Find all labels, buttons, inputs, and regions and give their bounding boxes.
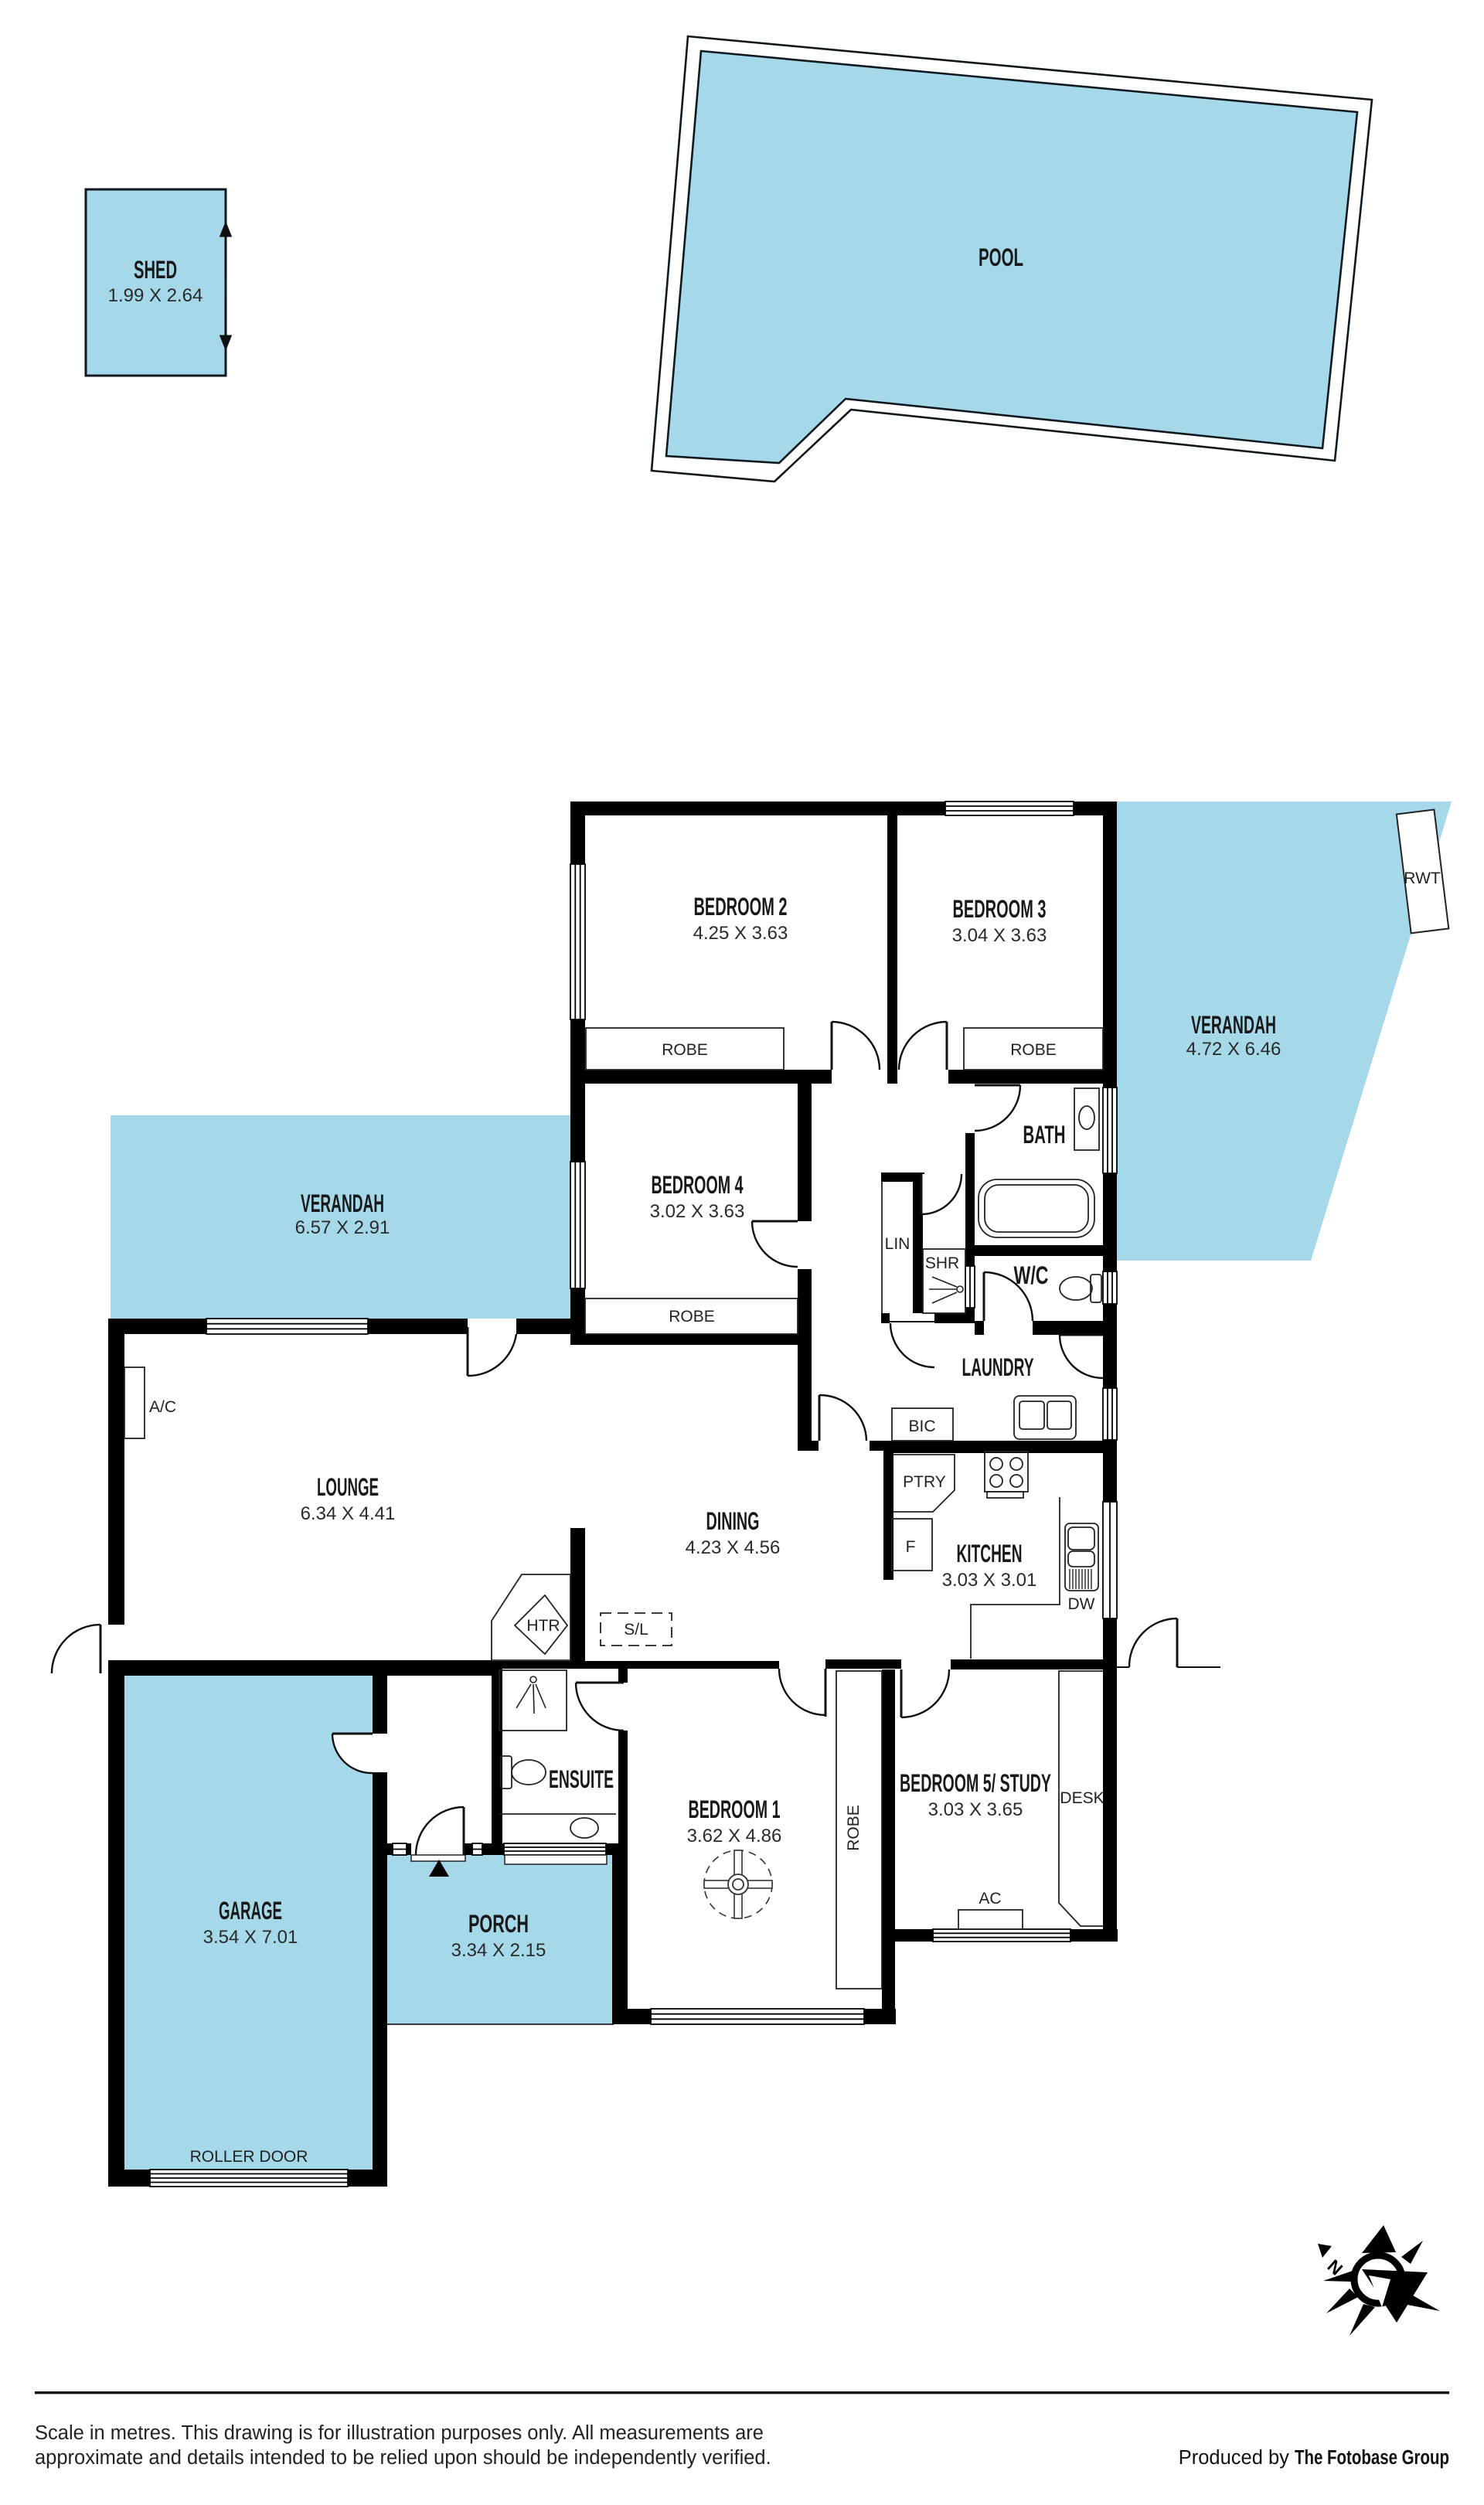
svg-text:3.34 X 2.15: 3.34 X 2.15 bbox=[451, 1940, 546, 1961]
svg-text:4.25 X 3.63: 4.25 X 3.63 bbox=[693, 923, 788, 944]
svg-text:VERANDAH: VERANDAH bbox=[301, 1190, 384, 1217]
svg-text:BEDROOM 4: BEDROOM 4 bbox=[652, 1171, 744, 1199]
svg-text:A/C: A/C bbox=[149, 1398, 176, 1416]
svg-text:SHED: SHED bbox=[134, 256, 177, 284]
svg-text:4.23 X 4.56: 4.23 X 4.56 bbox=[686, 1537, 781, 1558]
svg-text:BIC: BIC bbox=[908, 1418, 935, 1435]
svg-text:3.04 X 3.63: 3.04 X 3.63 bbox=[952, 925, 1047, 946]
svg-text:ROBE: ROBE bbox=[662, 1041, 708, 1059]
svg-text:ROBE: ROBE bbox=[845, 1805, 863, 1851]
svg-text:ROBE: ROBE bbox=[669, 1308, 715, 1326]
svg-text:3.03 X 3.01: 3.03 X 3.01 bbox=[942, 1570, 1037, 1591]
svg-text:GARAGE: GARAGE bbox=[219, 1897, 282, 1925]
svg-text:RWT: RWT bbox=[1404, 870, 1441, 887]
svg-text:BATH: BATH bbox=[1023, 1121, 1066, 1149]
svg-text:ROBE: ROBE bbox=[1010, 1041, 1057, 1059]
svg-text:DESK: DESK bbox=[1060, 1789, 1104, 1807]
svg-text:VERANDAH: VERANDAH bbox=[1191, 1011, 1276, 1039]
svg-text:BEDROOM 2: BEDROOM 2 bbox=[694, 893, 788, 921]
svg-text:LOUNGE: LOUNGE bbox=[317, 1473, 379, 1501]
svg-text:BEDROOM 1: BEDROOM 1 bbox=[689, 1795, 781, 1823]
svg-text:DINING: DINING bbox=[706, 1507, 760, 1535]
svg-text:AC: AC bbox=[979, 1890, 1001, 1908]
svg-text:3.02 X 3.63: 3.02 X 3.63 bbox=[650, 1201, 745, 1222]
svg-text:PORCH: PORCH bbox=[468, 1910, 529, 1938]
svg-text:LIN: LIN bbox=[885, 1235, 910, 1253]
svg-text:approximate and details intend: approximate and details intended to be r… bbox=[35, 2447, 771, 2469]
svg-text:ROLLER DOOR: ROLLER DOOR bbox=[190, 2148, 308, 2166]
svg-text:W/C: W/C bbox=[1014, 1261, 1049, 1289]
svg-text:3.54 X 7.01: 3.54 X 7.01 bbox=[203, 1927, 298, 1948]
svg-text:S/L: S/L bbox=[624, 1621, 648, 1639]
svg-text:HTR: HTR bbox=[526, 1617, 560, 1635]
svg-text:6.34 X 4.41: 6.34 X 4.41 bbox=[301, 1503, 396, 1524]
svg-text:F: F bbox=[906, 1538, 916, 1556]
svg-text:1.99 X 2.64: 1.99 X 2.64 bbox=[108, 285, 203, 306]
svg-text:6.57 X 2.91: 6.57 X 2.91 bbox=[295, 1217, 390, 1238]
svg-text:Produced by The Fotobase Group: Produced by The Fotobase Group bbox=[1179, 2447, 1449, 2469]
svg-text:SHR: SHR bbox=[925, 1254, 959, 1272]
svg-text:POOL: POOL bbox=[979, 243, 1023, 271]
svg-text:3.03 X 3.65: 3.03 X 3.65 bbox=[928, 1799, 1023, 1820]
svg-text:Scale in metres. This drawing: Scale in metres. This drawing is for ill… bbox=[35, 2422, 764, 2444]
svg-text:4.72 X 6.46: 4.72 X 6.46 bbox=[1186, 1039, 1281, 1060]
svg-text:ENSUITE: ENSUITE bbox=[549, 1765, 614, 1793]
svg-text:LAUNDRY: LAUNDRY bbox=[962, 1353, 1034, 1381]
svg-text:3.62 X 4.86: 3.62 X 4.86 bbox=[687, 1826, 782, 1846]
svg-text:BEDROOM 3: BEDROOM 3 bbox=[953, 895, 1047, 923]
svg-text:KITCHEN: KITCHEN bbox=[957, 1540, 1023, 1567]
svg-text:PTRY: PTRY bbox=[903, 1473, 946, 1491]
svg-text:DW: DW bbox=[1068, 1595, 1095, 1613]
svg-text:BEDROOM 5/ STUDY: BEDROOM 5/ STUDY bbox=[900, 1769, 1051, 1797]
